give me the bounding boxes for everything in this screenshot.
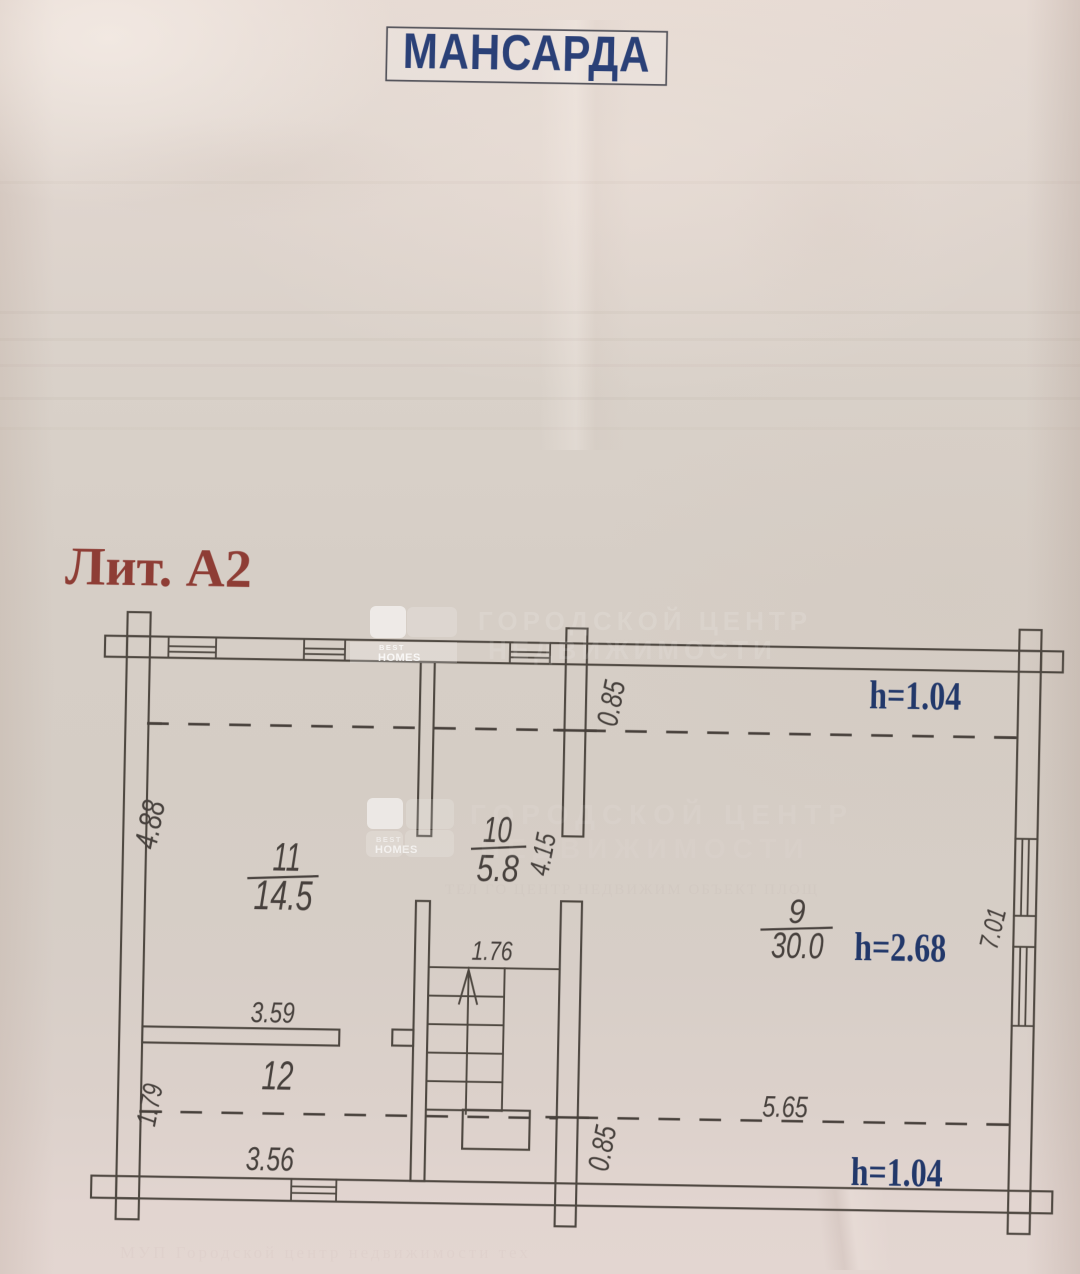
svg-text:3.59: 3.59 <box>250 995 295 1029</box>
svg-text:0.85: 0.85 <box>590 677 632 729</box>
svg-text:НЕДВИЖИМОСТИ: НЕДВИЖИМОСТИ <box>488 635 777 665</box>
svg-text:12: 12 <box>261 1053 294 1099</box>
svg-text:1.79: 1.79 <box>131 1081 170 1129</box>
svg-text:0.85: 0.85 <box>581 1122 623 1174</box>
svg-text:3.56: 3.56 <box>245 1142 295 1179</box>
svg-text:14.5: 14.5 <box>253 871 313 919</box>
svg-text:h=2.68: h=2.68 <box>854 925 947 971</box>
svg-text:BEST: BEST <box>376 835 402 844</box>
svg-text:HOMES: HOMES <box>375 844 418 856</box>
svg-text:BEST: BEST <box>379 643 405 652</box>
svg-text:ТЕЛ ГО ЦЕНТР НЕДВИЖИМ ОБЪЕКТ П: ТЕЛ ГО ЦЕНТР НЕДВИЖИМ ОБЪЕКТ ПЛОЩ <box>445 882 819 898</box>
svg-text:Лит. А2: Лит. А2 <box>65 536 253 599</box>
svg-text:4.88: 4.88 <box>128 797 172 852</box>
svg-text:7.01: 7.01 <box>974 905 1013 952</box>
svg-text:5.65: 5.65 <box>762 1090 809 1124</box>
svg-text:1.76: 1.76 <box>471 936 513 967</box>
svg-text:HOMES: HOMES <box>378 652 421 664</box>
svg-text:30.0: 30.0 <box>771 925 825 967</box>
svg-text:h=1.04: h=1.04 <box>850 1150 943 1196</box>
svg-text:МАНСАРДА: МАНСАРДА <box>402 22 651 82</box>
svg-text:МУП Городской центр недвижимос: МУП Городской центр недвижимости тех <box>120 1243 531 1262</box>
svg-text:ГОРОДСКОЙ ЦЕНТР: ГОРОДСКОЙ ЦЕНТР <box>478 606 812 636</box>
svg-text:ГОРОДСКОЙ ЦЕНТР: ГОРОДСКОЙ ЦЕНТР <box>470 798 854 830</box>
svg-text:h=1.04: h=1.04 <box>869 673 962 719</box>
svg-text:НЕДВИЖИМОСТИ: НЕДВИЖИМОСТИ <box>480 833 810 864</box>
